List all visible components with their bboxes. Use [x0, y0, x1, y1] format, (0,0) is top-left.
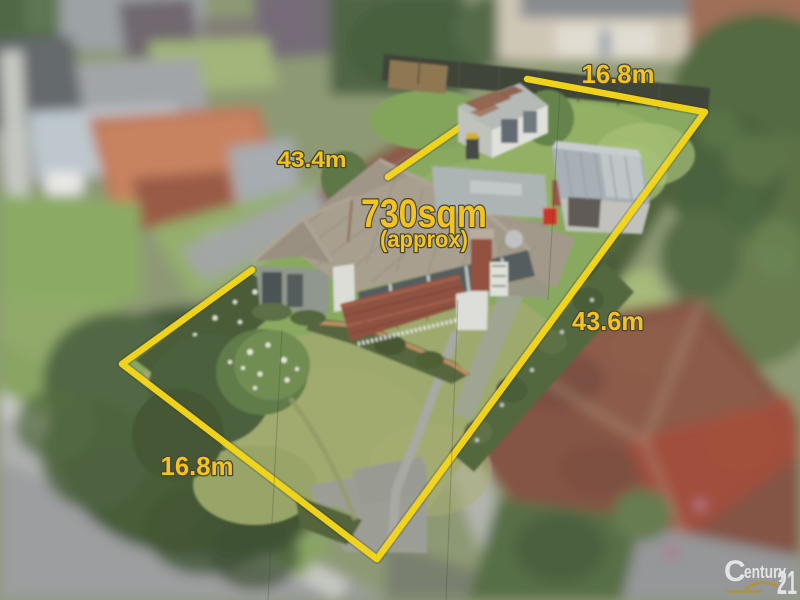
svg-text:43.4m: 43.4m	[278, 147, 347, 172]
svg-text:(approx): (approx)	[380, 226, 468, 252]
svg-text:16.8m: 16.8m	[582, 59, 655, 89]
svg-text:C: C	[724, 555, 746, 588]
svg-text:16.8m: 16.8m	[161, 451, 234, 481]
svg-text:21: 21	[777, 564, 797, 600]
svg-text:43.6m: 43.6m	[572, 306, 644, 336]
